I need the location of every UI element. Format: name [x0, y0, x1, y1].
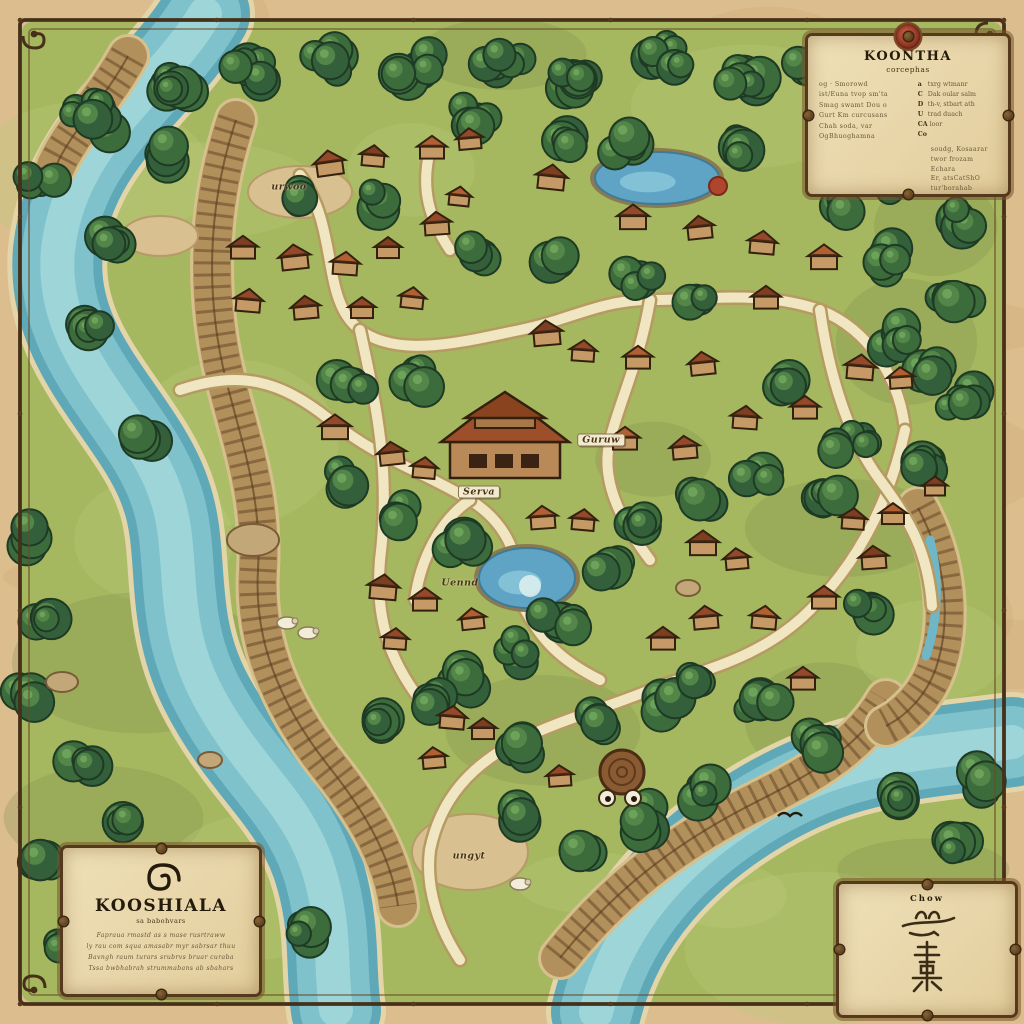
legend-note-line: Er, atsCatShO — [931, 174, 999, 184]
seal-box: Chow — [836, 881, 1018, 1018]
legend-glyph-icon: D — [918, 100, 926, 110]
legend-entry: Gurt Km curcusans — [819, 111, 911, 121]
legend-entry: Utrad duach — [918, 110, 999, 120]
legend-box: KOONTHA corcephas og · Smorowdist/Euna t… — [805, 33, 1011, 197]
legend-glyph-icon: Co — [918, 130, 927, 140]
frame-stud — [411, 18, 416, 23]
frame-stud — [1002, 805, 1007, 810]
frame-knot — [157, 844, 166, 853]
legend-entry-label: th-v, stbart ath — [928, 101, 975, 108]
frame-stud — [18, 18, 23, 23]
description-line: ly rau com squa amasabr myr sabrsar thuu — [75, 942, 247, 953]
frame-knot — [59, 917, 68, 926]
tree-cluster — [102, 801, 144, 843]
description-line: Fapraua rmastd as s mase rusrtraww — [75, 931, 247, 942]
village-description: Fapraua rmastd as s mase rusrtrawwly rau… — [63, 931, 259, 975]
legend-entry-label: txrg wtmanr — [928, 81, 968, 88]
rock — [198, 752, 222, 768]
legend-columns: og · Smorowdist/Euna tvop sm'taSmag swam… — [808, 74, 1008, 193]
legend-entry: CAloor — [918, 120, 999, 130]
frame-knot — [1004, 111, 1013, 120]
legend-glyph-icon: C — [918, 90, 926, 100]
village-title: KOOSHIALA — [63, 896, 259, 916]
legend-subtitle: corcephas — [808, 65, 1008, 74]
legend-entry: Chah soda, var — [819, 122, 911, 132]
sheep — [298, 627, 319, 639]
legend-entry: ist/Euna tvop sm'ta — [819, 90, 911, 100]
legend-note: soudg, Kosaarartwor frozamEcharaEr, atsC… — [918, 145, 999, 193]
frame-stud — [1002, 18, 1007, 23]
spiral-icon — [63, 856, 259, 894]
frame-stud — [1002, 215, 1007, 220]
frame-stud — [18, 608, 23, 613]
frame-stud — [805, 18, 810, 23]
legend-entry: og · Smorowd — [819, 80, 911, 90]
rock — [676, 580, 700, 596]
legend-entry: CDak oular salm — [918, 90, 999, 100]
legend-left-column: og · Smorowdist/Euna tvop sm'taSmag swam… — [819, 80, 911, 193]
legend-entry: Co — [918, 130, 999, 140]
frame-stud — [608, 1002, 613, 1007]
description-line: Tssa bwbhabrah strummabans ab sbahars — [75, 964, 247, 975]
description-line: Bavngh raum turars srubrvs bruar curaba — [75, 953, 247, 964]
frame-knot — [157, 990, 166, 999]
frame-stud — [1002, 411, 1007, 416]
village-subtitle: sa babohvars — [63, 917, 259, 925]
legend-entry-label: trad duach — [928, 111, 963, 118]
seal-title: Chow — [839, 894, 1015, 904]
frame-stud — [18, 215, 23, 220]
legend-note-line: soudg, Kosaarar — [931, 145, 999, 155]
frame-stud — [608, 18, 613, 23]
legend-right-column: atxrg wtmanrCDak oular salmDth-v, stbart… — [918, 80, 999, 193]
legend-entry: OgBhuoghamna — [819, 132, 911, 142]
calligraphy-glyph-icon — [882, 904, 972, 996]
rock — [227, 524, 279, 556]
frame-stud — [215, 1002, 220, 1007]
legend-glyph-icon: U — [918, 110, 926, 120]
frame-knot — [904, 32, 913, 41]
sheep — [277, 617, 298, 629]
legend-entry: atxrg wtmanr — [918, 80, 999, 90]
legend-note-line: twor frozam — [931, 155, 999, 165]
frame-stud — [1002, 608, 1007, 613]
sheep — [510, 878, 531, 890]
frame-stud — [805, 1002, 810, 1007]
frame-knot — [804, 111, 813, 120]
frame-knot — [923, 880, 932, 889]
legend-entry-label: loor — [930, 121, 943, 128]
legend-note-line: Echara — [931, 165, 999, 175]
legend-glyph-icon: a — [918, 80, 926, 90]
frame-knot — [1011, 945, 1020, 954]
frame-stud — [18, 1002, 23, 1007]
legend-title: KOONTHA — [808, 49, 1008, 64]
frame-knot — [835, 945, 844, 954]
frame-knot — [923, 1011, 932, 1020]
legend-entry-label: Dak oular salm — [928, 91, 976, 98]
frame-stud — [18, 805, 23, 810]
frame-stud — [411, 1002, 416, 1007]
legend-note-line: tur'borahab — [931, 184, 999, 194]
frame-knot — [904, 190, 913, 199]
legend-entry: Smag swamt Dou o — [819, 101, 911, 111]
frame-stud — [215, 18, 220, 23]
rock — [46, 672, 78, 692]
title-box: KOOSHIALA sa babohvars Fapraua rmastd as… — [60, 845, 262, 997]
legend-glyph-icon: CA — [918, 120, 928, 130]
frame-stud — [18, 411, 23, 416]
red-bush-marker — [709, 177, 727, 195]
legend-entry: Dth-v, stbart ath — [918, 100, 999, 110]
fantasy-village-map: urwooGuruwServaUenndungyt KOONTHA corcep… — [0, 0, 1024, 1024]
frame-knot — [255, 917, 264, 926]
